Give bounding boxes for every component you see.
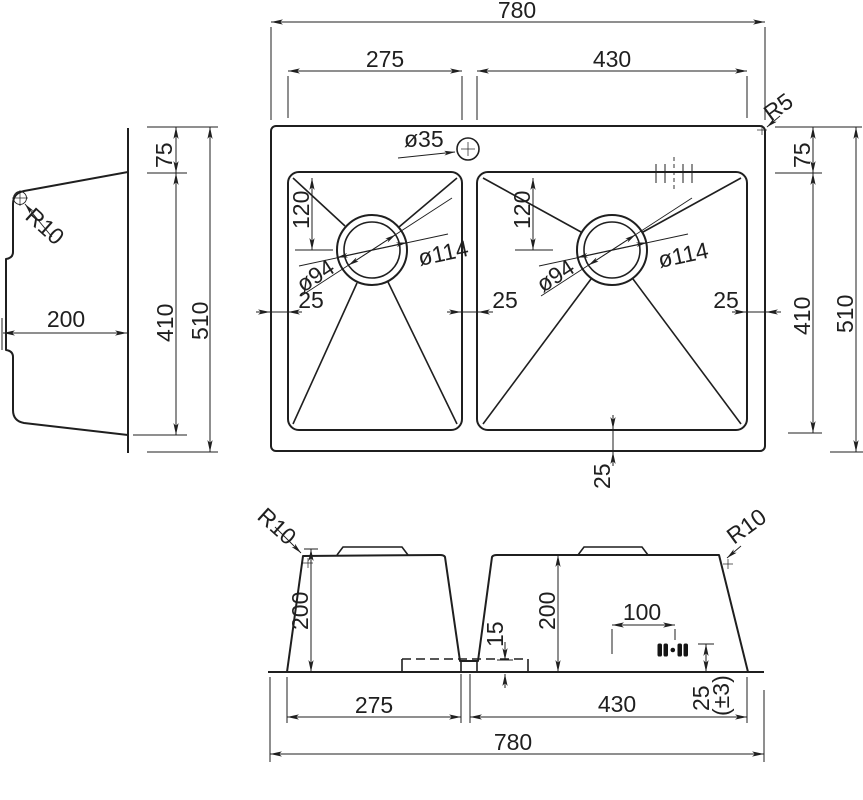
right-bowl-width-bottom-label: 430 [598,691,636,717]
sink-outer-rim [271,126,765,451]
side-corner-radius-label: R10 [21,202,70,250]
side-rim-margin-label: 75 [151,142,177,168]
dim-side-bowl-depth: 200 [2,306,127,350]
plan-view: ø35 ø1 [256,0,798,489]
dim-bowl-depth-right: 200 [534,555,565,672]
dim-outlet-height: 25 (±3) [688,644,734,716]
drawing-canvas: R10 200 75 410 510 ø35 [0,0,863,800]
front-view: R10 R10 200 200 100 [253,502,771,762]
right-drain-inner-dia-label: ø94 [532,254,580,298]
right-drain-callouts: ø114 ø94 [532,198,711,297]
right-drain-offset-label: 120 [509,191,535,229]
dim-left-bowl-width-bottom: 275 [287,674,461,723]
dim-right-bowl-width-top: 430 [477,46,747,120]
overflow-mark [656,157,692,190]
left-dim-stack: 75 410 510 [133,127,218,452]
side-overall-depth-label: 510 [187,302,213,340]
rim-margin-left-label: 25 [298,287,324,313]
plan-rim-margin-top-label: 75 [789,142,815,168]
right-drain-outer-dia-label: ø114 [656,237,711,273]
outlet-tolerance-label: (±3) [708,675,734,716]
left-bowl-width-top-label: 275 [366,46,404,72]
side-bowl-profile [6,172,128,435]
side-bowl-length-label: 410 [152,304,178,342]
dim-drain-offset-right: 120 [509,178,553,250]
divider-depth-label: 15 [482,621,508,647]
side-bowl-depth-label: 200 [47,306,85,332]
front-radius-left-label: R10 [253,502,302,550]
callout-front-radius-right: R10 [722,503,771,569]
left-drain-boss [337,547,408,555]
side-view: R10 200 [2,128,128,453]
right-drain-boss [578,547,648,555]
right-bowl-width-top-label: 430 [593,46,631,72]
overall-width-top-label: 780 [498,0,536,23]
plan-overall-depth-label: 510 [832,295,858,333]
rim-margin-bottom-label: 25 [589,463,615,489]
sink-technical-drawing: R10 200 75 410 510 ø35 [0,0,863,800]
dim-overall-width-top: 780 [271,0,765,120]
overall-width-bottom-label: 780 [494,729,532,755]
dim-rim-margin-center: 25 [447,287,518,313]
bowl-depth-left-label: 200 [287,592,313,630]
dim-divider-depth: 15 [482,621,513,688]
front-radius-right-label: R10 [722,503,771,549]
left-drain-callouts: ø114 ø94 [292,198,471,297]
outlet-symbol [658,644,689,657]
bowl-depth-right-label: 200 [534,592,560,630]
dim-left-bowl-width-top: 275 [288,46,462,120]
right-dim-stack: 75 410 510 [775,127,863,452]
drain-offset-front-label: 100 [623,599,661,625]
left-drain-offset-label: 120 [288,191,314,229]
faucet-leader [398,152,455,158]
left-bowl-width-bottom-label: 275 [355,692,393,718]
rim-margin-center-label: 25 [492,287,518,313]
dim-bowl-depth-left: 200 [287,549,318,672]
callout-front-radius-left: R10 [253,502,313,568]
rim-margin-right-label: 25 [713,287,739,313]
plan-bowl-length-label: 410 [789,297,815,335]
dim-drain-offset-left: 120 [288,178,333,250]
faucet-dia-label: ø35 [404,126,444,152]
dim-rim-margin-left: 25 [256,287,324,313]
